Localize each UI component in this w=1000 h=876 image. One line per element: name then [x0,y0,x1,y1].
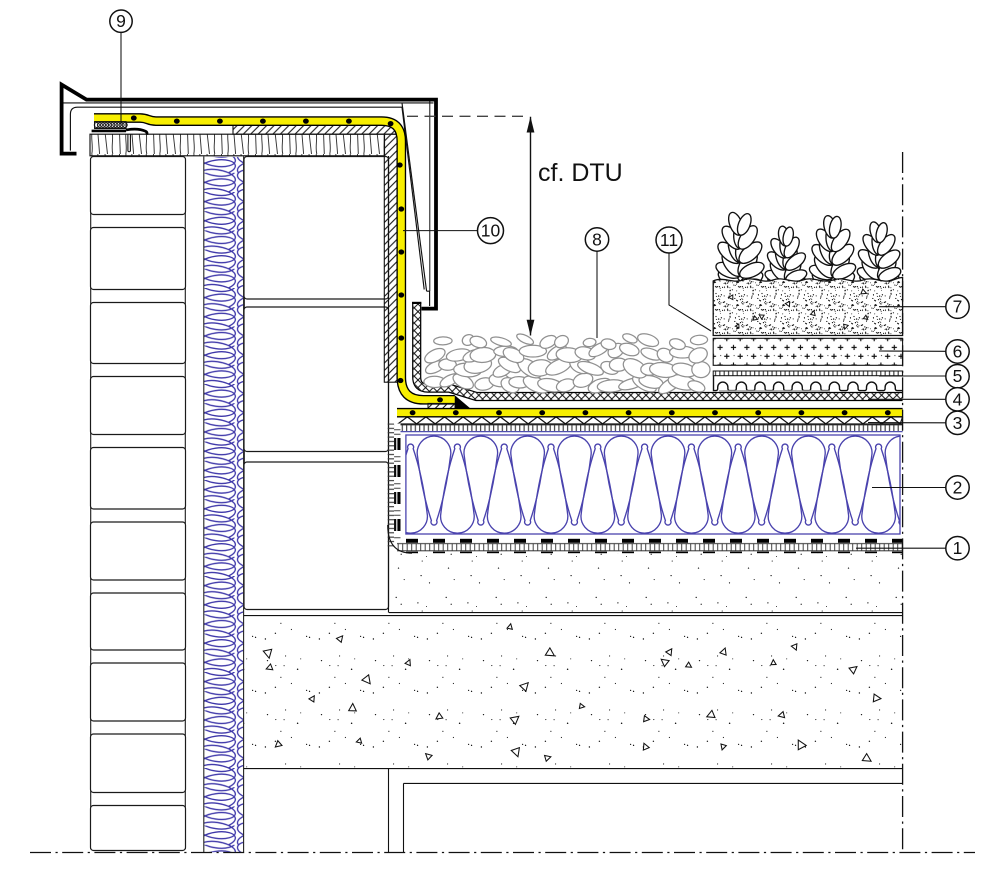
svg-text:2: 2 [953,478,963,498]
svg-text:4: 4 [953,389,963,409]
svg-text:9: 9 [116,11,126,31]
svg-text:6: 6 [953,342,963,362]
svg-text:11: 11 [660,230,678,250]
svg-text:7: 7 [953,297,963,317]
svg-text:3: 3 [953,413,963,433]
svg-text:cf. DTU: cf. DTU [538,159,623,187]
svg-text:1: 1 [953,538,963,558]
svg-text:8: 8 [592,230,602,250]
svg-text:10: 10 [481,221,501,241]
svg-text:5: 5 [953,366,963,386]
